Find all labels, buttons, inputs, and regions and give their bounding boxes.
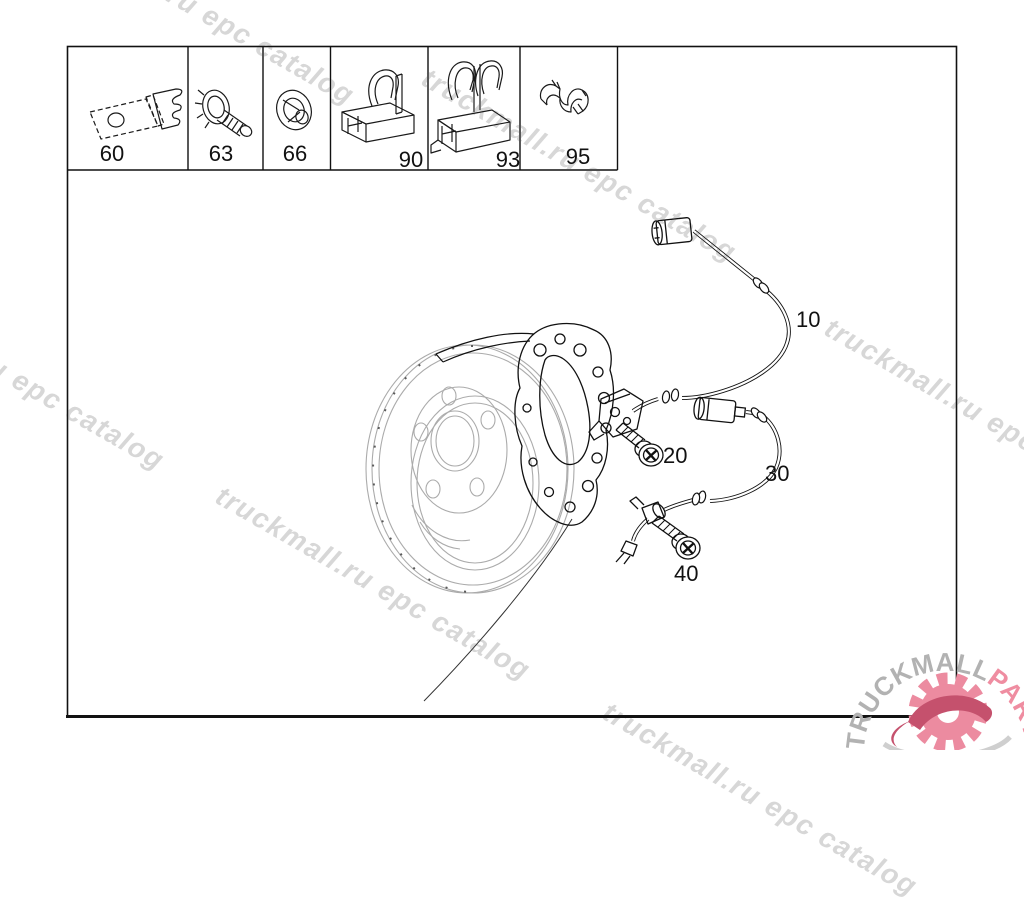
- catalog-page: 60 63 66 90 93 95 10 20 30 40 truckmall.…: [0, 0, 1024, 750]
- truckmall-parts-logo: TRUCKMALLPARTS: [0, 0, 1024, 750]
- gear-icon: [891, 679, 992, 747]
